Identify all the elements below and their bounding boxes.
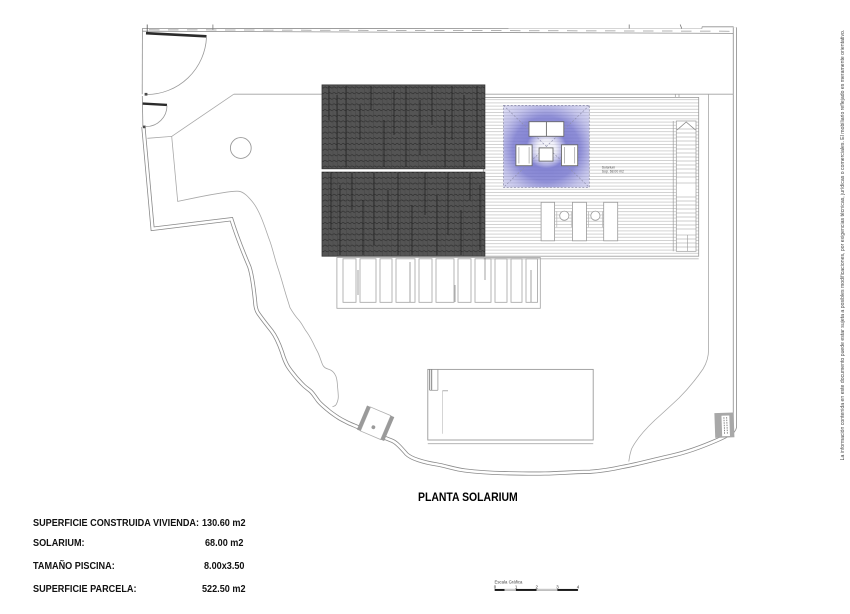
svg-text:Sup. 68.00 m2: Sup. 68.00 m2 — [602, 170, 624, 174]
svg-text:Escala Gráfica: Escala Gráfica — [495, 580, 524, 585]
svg-text:2: 2 — [536, 584, 539, 589]
svg-text:4: 4 — [577, 584, 580, 589]
svg-text:1: 1 — [515, 584, 518, 589]
svg-text:0: 0 — [494, 584, 497, 589]
svg-text:3: 3 — [556, 584, 559, 589]
